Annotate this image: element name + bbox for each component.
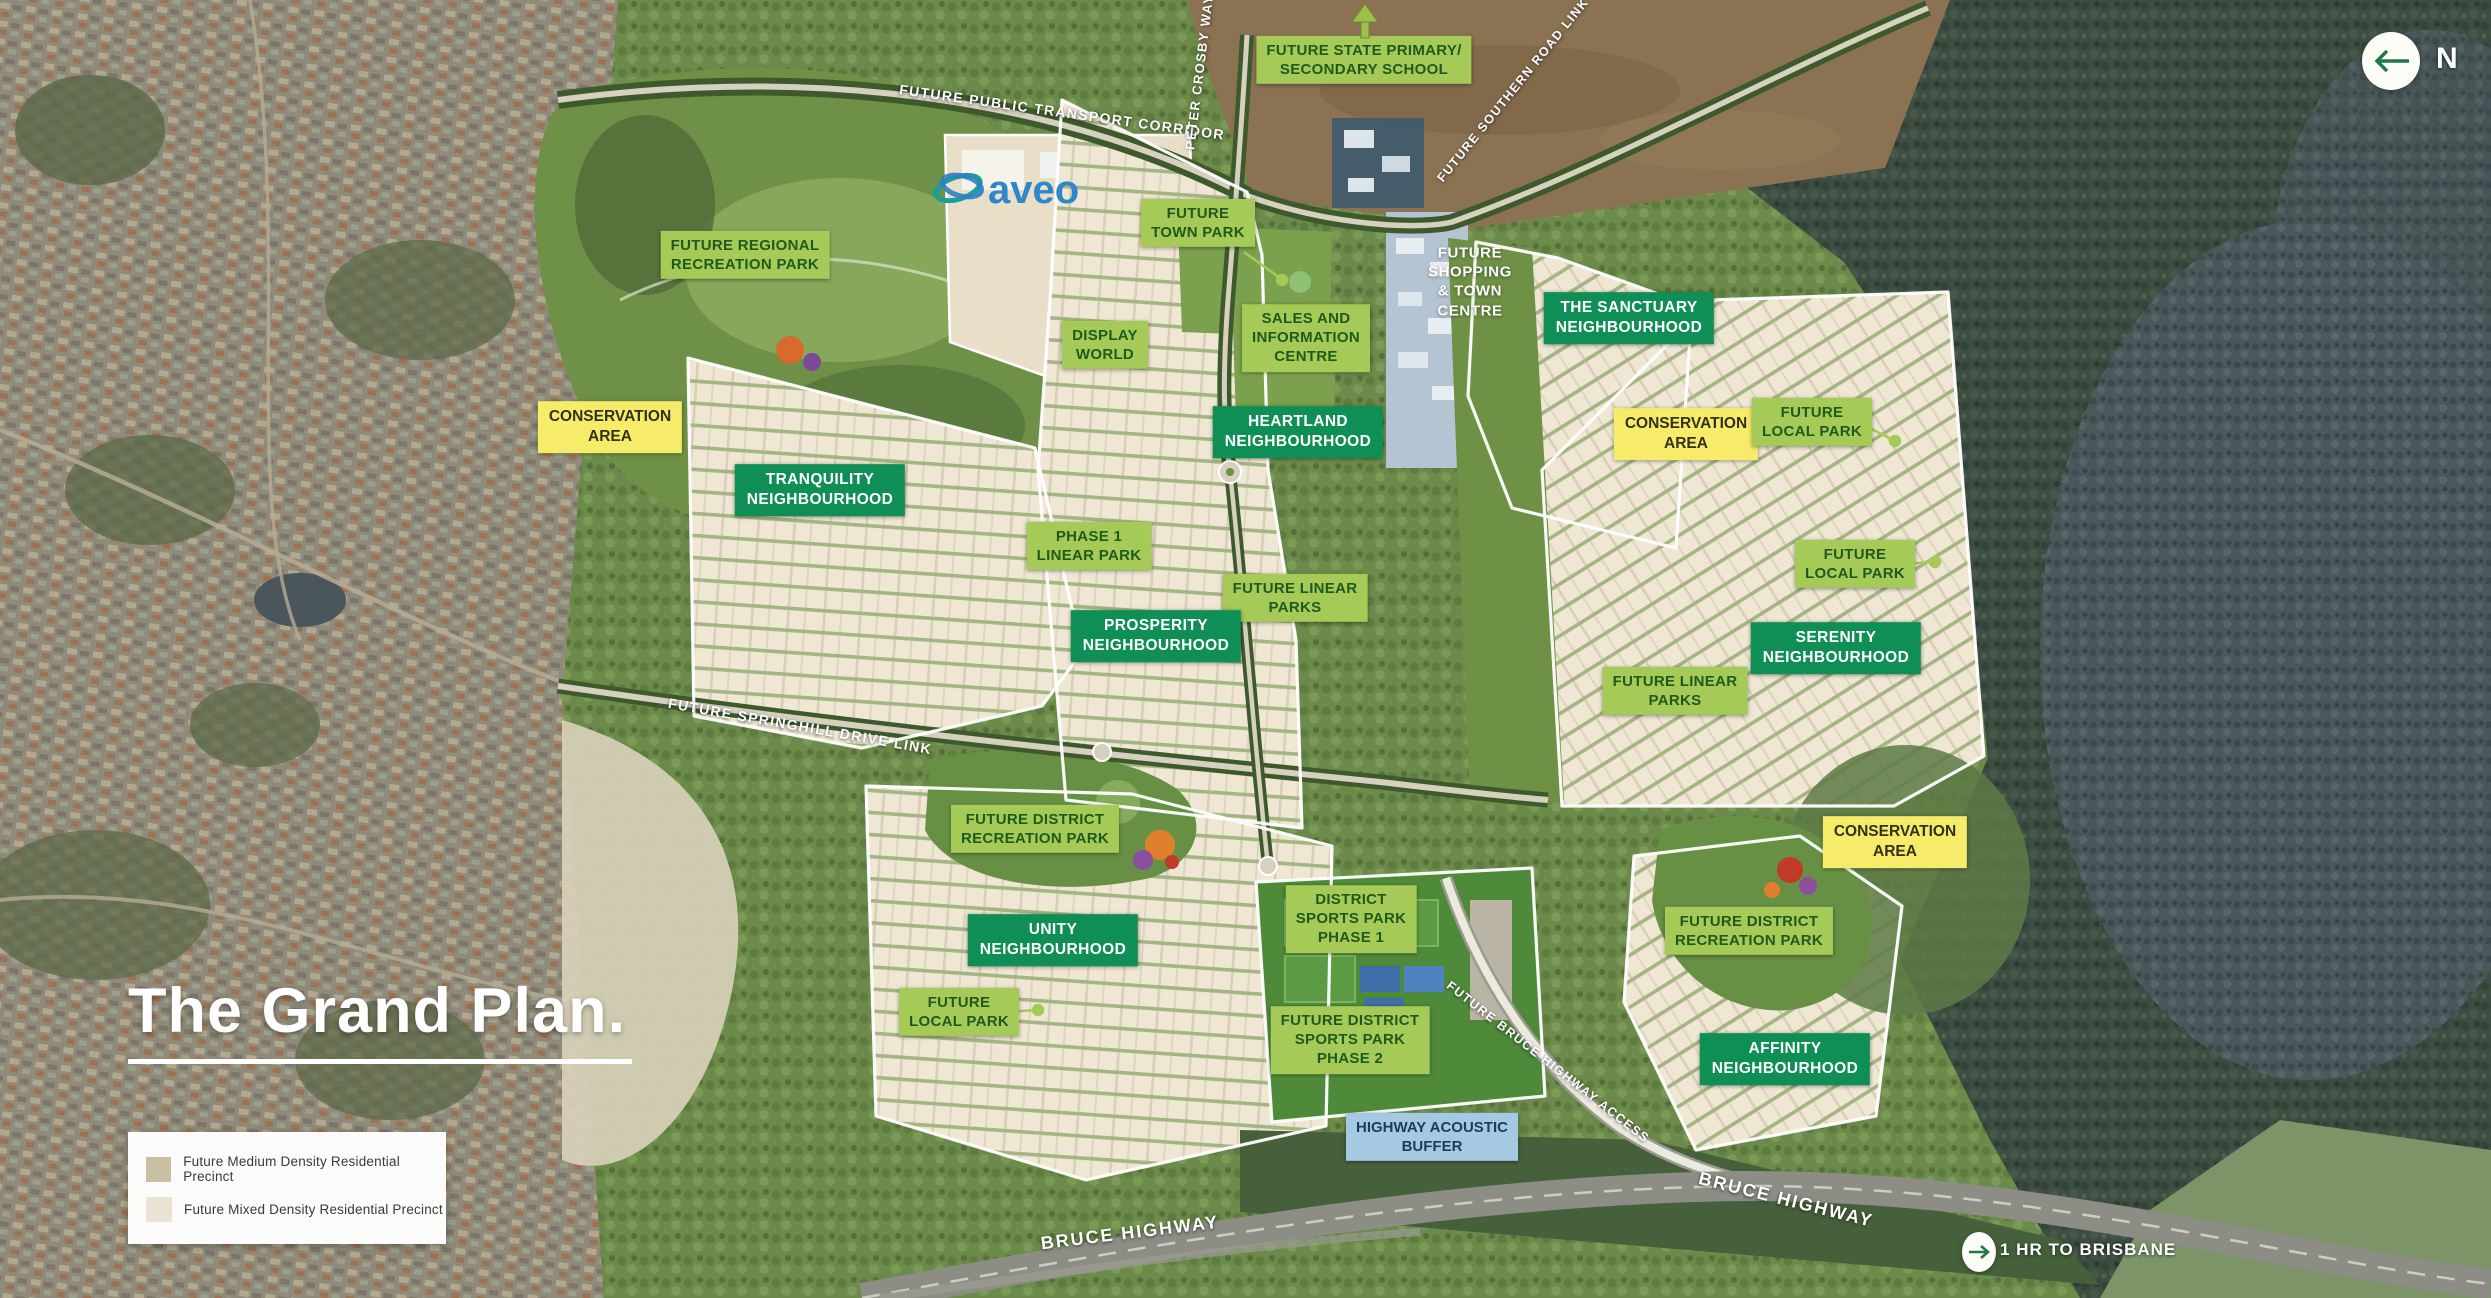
existing-suburb-west bbox=[0, 0, 618, 1298]
label-local-park-northeast: FUTURE LOCAL PARK bbox=[1752, 398, 1872, 446]
label-phase1-linear-park: PHASE 1 LINEAR PARK bbox=[1027, 522, 1152, 570]
map-artwork bbox=[0, 0, 2491, 1298]
masterplan-map: aveo FUTURE STATE PRIMARY/ SECONDARY SCH… bbox=[0, 0, 2491, 1298]
aveo-logo-text: aveo bbox=[988, 168, 1079, 212]
brisbane-travel-time: 1 HR TO BRISBANE bbox=[2000, 1240, 2176, 1260]
label-prosperity-neighbourhood: PROSPERITY NEIGHBOURHOOD bbox=[1071, 610, 1241, 662]
label-regional-recreation-park: FUTURE REGIONAL RECREATION PARK bbox=[661, 231, 830, 279]
legend: Future Medium Density Residential Precin… bbox=[128, 1132, 446, 1244]
label-unity-neighbourhood: UNITY NEIGHBOURHOOD bbox=[968, 914, 1138, 966]
label-display-world: DISPLAY WORLD bbox=[1062, 321, 1148, 369]
page-title: The Grand Plan. bbox=[128, 975, 632, 1064]
label-heartland-neighbourhood: HEARTLAND NEIGHBOURHOOD bbox=[1213, 406, 1383, 458]
legend-item-mixed-density: Future Mixed Density Residential Precinc… bbox=[146, 1197, 446, 1222]
arrow-right-icon bbox=[1962, 1232, 1996, 1272]
label-serenity-neighbourhood: SERENITY NEIGHBOURHOOD bbox=[1751, 622, 1921, 674]
label-district-sports-park-phase1: DISTRICT SPORTS PARK PHASE 1 bbox=[1286, 885, 1417, 953]
legend-swatch-medium-density bbox=[146, 1157, 171, 1182]
legend-swatch-mixed-density bbox=[146, 1197, 172, 1222]
label-future-linear-parks-central: FUTURE LINEAR PARKS bbox=[1223, 574, 1368, 622]
label-affinity-neighbourhood: AFFINITY NEIGHBOURHOOD bbox=[1700, 1033, 1870, 1085]
label-sales-information-centre: SALES AND INFORMATION CENTRE bbox=[1242, 304, 1370, 372]
label-conservation-area-southeast: CONSERVATION AREA bbox=[1823, 816, 1967, 868]
north-arrow-icon bbox=[2362, 32, 2420, 90]
label-district-recreation-park-west: FUTURE DISTRICT RECREATION PARK bbox=[951, 805, 1119, 853]
label-future-town-park: FUTURE TOWN PARK bbox=[1141, 199, 1255, 247]
label-conservation-area-northeast: CONSERVATION AREA bbox=[1614, 408, 1758, 460]
label-conservation-area-west: CONSERVATION AREA bbox=[538, 401, 682, 453]
label-district-sports-park-phase2: FUTURE DISTRICT SPORTS PARK PHASE 2 bbox=[1271, 1006, 1430, 1074]
label-district-recreation-park-east: FUTURE DISTRICT RECREATION PARK bbox=[1665, 907, 1833, 955]
label-tranquility-neighbourhood: TRANQUILITY NEIGHBOURHOOD bbox=[735, 464, 905, 516]
label-highway-acoustic-buffer: HIGHWAY ACOUSTIC BUFFER bbox=[1346, 1113, 1518, 1161]
label-future-linear-parks-east: FUTURE LINEAR PARKS bbox=[1603, 667, 1748, 715]
label-local-park-south: FUTURE LOCAL PARK bbox=[899, 988, 1019, 1036]
label-future-shopping-town-centre: FUTURE SHOPPING & TOWN CENTRE bbox=[1428, 244, 1512, 321]
legend-item-medium-density: Future Medium Density Residential Precin… bbox=[146, 1154, 446, 1184]
aveo-logo: aveo bbox=[930, 158, 1090, 225]
label-local-park-east: FUTURE LOCAL PARK bbox=[1795, 540, 1915, 588]
compass-north-label: N bbox=[2436, 42, 2458, 76]
legend-label-mixed-density: Future Mixed Density Residential Precinc… bbox=[184, 1202, 443, 1217]
legend-label-medium-density: Future Medium Density Residential Precin… bbox=[183, 1154, 446, 1184]
school-arrow-icon bbox=[1352, 4, 1378, 45]
label-sanctuary-neighbourhood: THE SANCTUARY NEIGHBOURHOOD bbox=[1544, 292, 1714, 344]
